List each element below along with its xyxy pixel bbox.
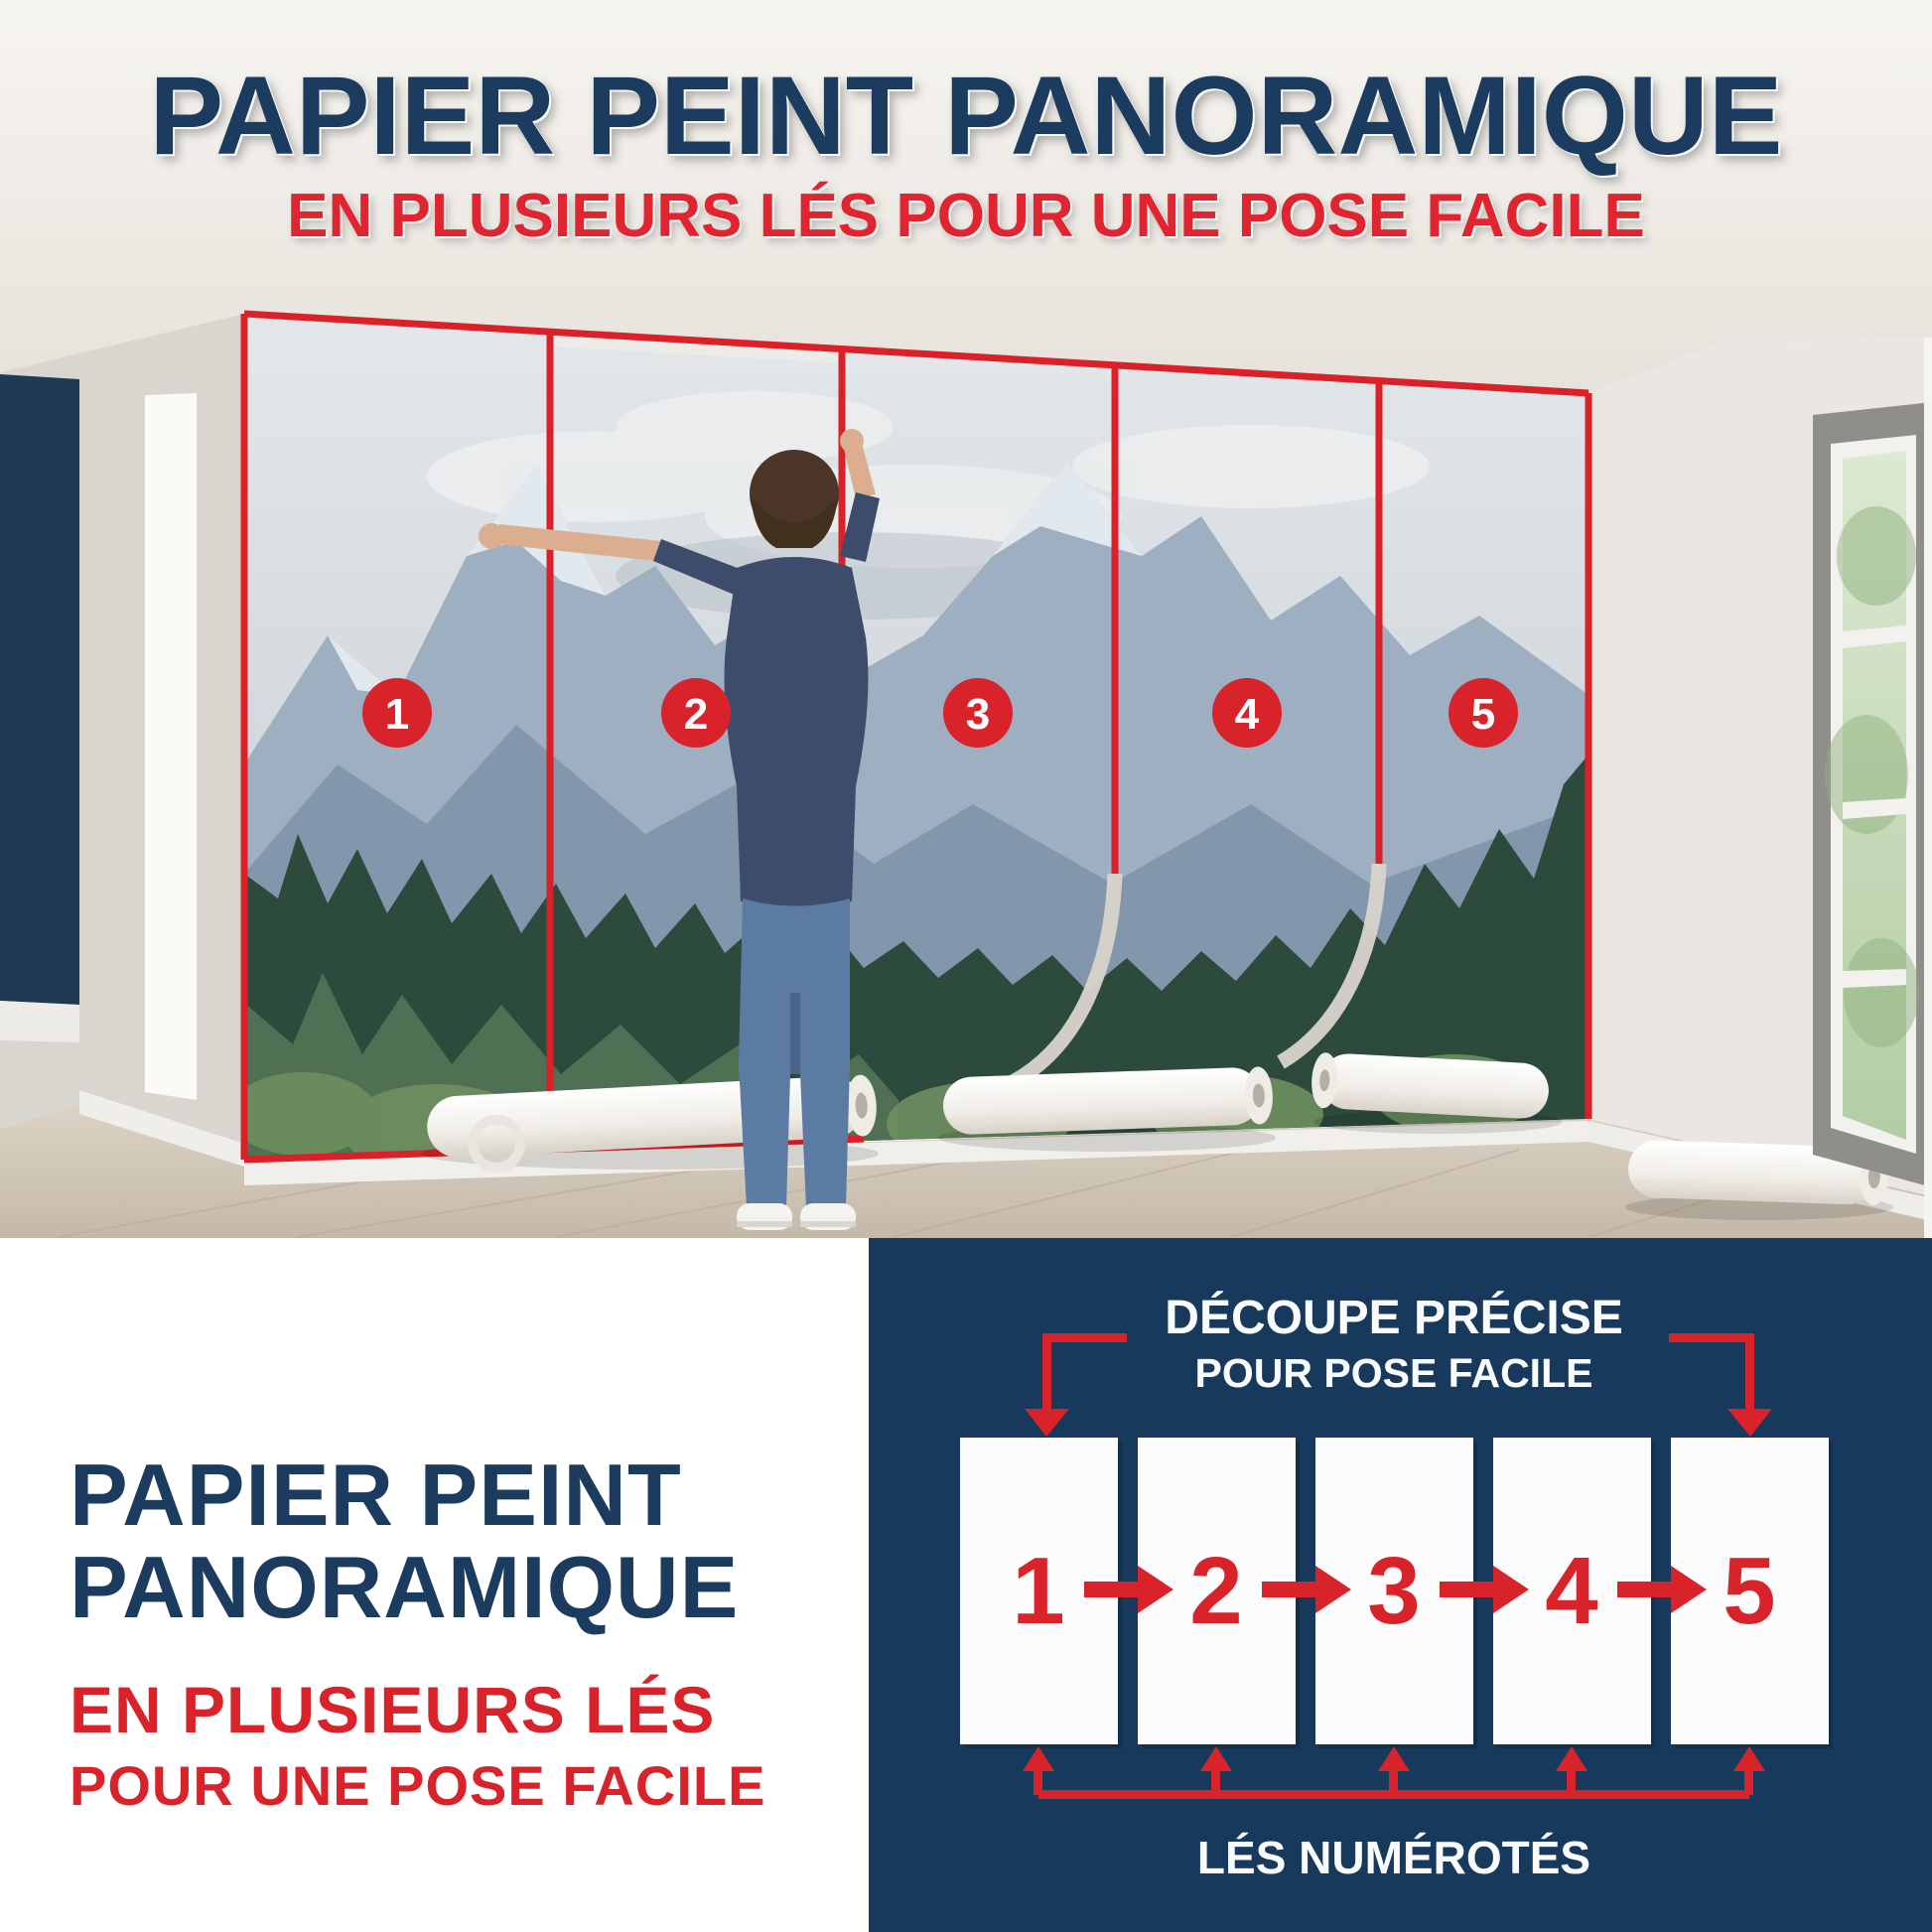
strip-number-2: 2 [684, 690, 708, 739]
bottom-section: PAPIER PEINT PANORAMIQUE EN PLUSIEURS LÉ… [0, 1238, 1932, 1932]
text-panel-subtitle-line2: POUR UNE POSE FACILE [69, 1755, 869, 1817]
strip-badge-2: 2 [661, 678, 731, 748]
text-panel-title-line2: PANORAMIQUE [69, 1541, 869, 1633]
doorway [145, 393, 197, 1100]
right-edge-highlight [1924, 338, 1932, 1238]
strips-diagram-panel: DÉCOUPE PRÉCISE POUR POSE FACILE [869, 1238, 1932, 1932]
bottom-bracket [1023, 1746, 1765, 1799]
room-scene: 1 2 3 4 5 [0, 0, 1932, 1238]
wall-mural [228, 298, 1588, 1179]
window [1813, 402, 1932, 1187]
strip-badge-3: 3 [943, 678, 1013, 748]
diagram-number-2: 2 [1189, 1538, 1242, 1644]
text-panel-title-line1: PAPIER PEINT [69, 1449, 869, 1541]
wallpaper-roll-2 [942, 1066, 1274, 1136]
diagram-number-3: 3 [1367, 1538, 1420, 1644]
strip-number-3: 3 [966, 690, 990, 739]
diagram-number-5: 5 [1723, 1538, 1775, 1644]
accent-wall [0, 374, 79, 1005]
strip-number-5: 5 [1471, 690, 1495, 739]
strip-number-1: 1 [385, 690, 409, 739]
diagram-header-line1: DÉCOUPE PRÉCISE [1165, 1291, 1622, 1344]
diagram-number-4: 4 [1545, 1538, 1597, 1644]
installation-photo: 1 2 3 4 5 [0, 0, 1932, 1238]
strips-diagram: DÉCOUPE PRÉCISE POUR POSE FACILE [869, 1238, 1932, 1932]
strip-badge-5: 5 [1449, 678, 1518, 748]
diagram-caption: LÉS NUMÉROTÉS [1197, 1832, 1590, 1883]
strip-badge-4: 4 [1212, 678, 1282, 748]
strip-badge-1: 1 [362, 678, 432, 748]
accent-wall-baseboard [0, 1001, 79, 1042]
diagram-number-1: 1 [1012, 1538, 1064, 1644]
strip-number-4: 4 [1235, 690, 1260, 739]
text-panel-subtitle-line1: EN PLUSIEURS LÉS [69, 1674, 869, 1746]
diagram-header-line2: POUR POSE FACILE [1195, 1350, 1593, 1396]
product-infographic: 1 2 3 4 5 [0, 0, 1932, 1932]
text-panel: PAPIER PEINT PANORAMIQUE EN PLUSIEURS LÉ… [0, 1238, 869, 1932]
